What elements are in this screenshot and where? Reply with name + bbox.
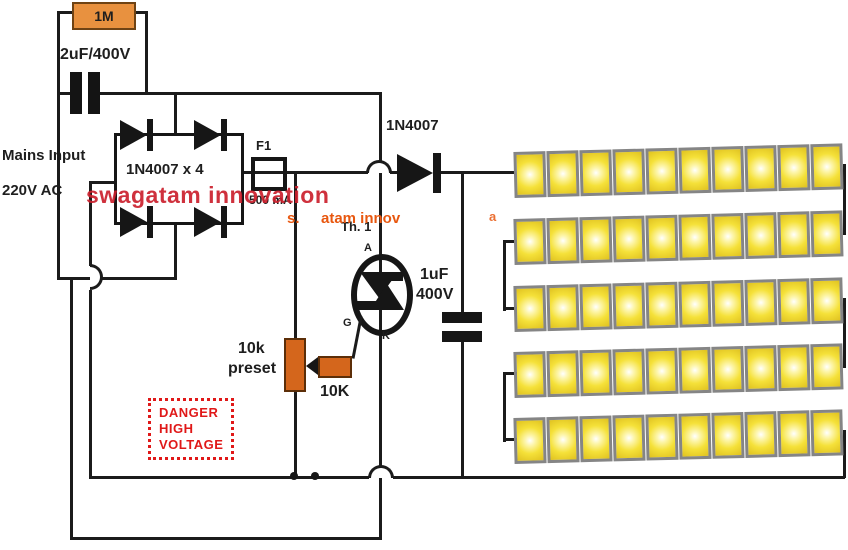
led — [513, 218, 546, 265]
wire — [89, 290, 92, 479]
bridge-label: 1N4007 x 4 — [126, 162, 204, 178]
led — [810, 277, 843, 324]
led — [612, 415, 645, 462]
junction-dot — [290, 472, 298, 480]
wire — [294, 390, 297, 478]
resistor-1m: 1M — [72, 2, 136, 30]
capacitor-1uf-plate — [442, 312, 482, 323]
led — [744, 411, 777, 458]
led — [546, 350, 579, 397]
wire — [70, 537, 382, 540]
thyristor-bar-icon — [357, 301, 383, 310]
wire — [503, 373, 506, 442]
led — [513, 417, 546, 464]
preset-potentiometer — [284, 338, 306, 392]
gate-resistor — [318, 356, 352, 378]
wire — [393, 476, 845, 479]
wire-jump — [368, 465, 394, 478]
led — [711, 280, 744, 327]
led — [744, 212, 777, 259]
thyristor-bar-icon — [377, 272, 403, 281]
led — [711, 412, 744, 459]
capacitor-2uf-plate — [88, 72, 100, 114]
wire — [461, 342, 464, 478]
led — [744, 345, 777, 392]
led — [678, 214, 711, 261]
led — [513, 351, 546, 398]
wire — [174, 93, 177, 135]
watermark-fragment: a — [489, 209, 496, 224]
led-strip-row4 — [513, 343, 843, 398]
junction-dot — [311, 472, 319, 480]
filter-cap-value-label: 1uF — [420, 267, 448, 284]
led — [777, 278, 810, 325]
wire — [503, 240, 506, 311]
cathode-label: K — [382, 331, 390, 343]
led — [711, 213, 744, 260]
led — [777, 144, 810, 191]
danger-line3: VOLTAGE — [159, 437, 223, 453]
mains-input-label: Mains Input — [2, 148, 85, 164]
danger-warning-box: DANGER HIGH VOLTAGE — [148, 398, 234, 460]
wire — [57, 92, 71, 95]
led — [810, 210, 843, 257]
led — [744, 279, 777, 326]
capacitor-2uf-label: 2uF/400V — [60, 47, 130, 64]
led — [579, 283, 612, 330]
wire — [89, 476, 369, 479]
wire-jump — [366, 160, 392, 173]
led — [612, 283, 645, 330]
led — [645, 414, 678, 461]
led — [711, 346, 744, 393]
wire — [174, 223, 177, 279]
wire — [461, 172, 464, 314]
led-strip-row1 — [513, 143, 843, 198]
led — [744, 145, 777, 192]
led-strip-row5 — [513, 409, 843, 464]
capacitor-1uf-plate — [442, 331, 482, 342]
series-diode-label: 1N4007 — [386, 118, 439, 134]
led — [513, 285, 546, 332]
resistor-1m-label: 1M — [94, 8, 113, 24]
watermark-main: swagatam innovation — [86, 182, 329, 209]
wire — [57, 277, 177, 280]
led — [678, 281, 711, 328]
anode-label: A — [364, 243, 372, 255]
bridge-diode-icon — [120, 206, 153, 238]
led — [546, 416, 579, 463]
preset-word-label: preset — [228, 361, 276, 378]
led-strip-row3 — [513, 277, 843, 332]
wire — [843, 298, 846, 368]
led — [645, 348, 678, 395]
wire — [145, 11, 148, 95]
bridge-diode-icon — [120, 119, 153, 151]
led — [612, 216, 645, 263]
led — [579, 149, 612, 196]
led — [579, 415, 612, 462]
led — [777, 344, 810, 391]
led — [579, 216, 612, 263]
watermark-fragment: s. — [287, 210, 300, 227]
led — [810, 409, 843, 456]
wire-jump — [90, 264, 103, 290]
led — [678, 413, 711, 460]
series-diode-icon — [397, 153, 441, 193]
wire — [99, 92, 382, 95]
led — [810, 343, 843, 390]
watermark-fragment: atam innov — [321, 210, 400, 227]
wire — [843, 164, 846, 235]
gate-resistor-label: 10K — [320, 384, 349, 401]
gate-label: G — [343, 318, 352, 330]
preset-value-label: 10k — [238, 341, 265, 358]
led — [678, 347, 711, 394]
led — [777, 211, 810, 258]
bridge-diode-icon — [194, 119, 227, 151]
led — [546, 217, 579, 264]
danger-line1: DANGER — [159, 405, 223, 421]
led — [678, 147, 711, 194]
filter-cap-voltage-label: 400V — [416, 287, 453, 304]
led — [546, 150, 579, 197]
led — [645, 215, 678, 262]
capacitor-2uf-plate — [70, 72, 82, 114]
mains-voltage-label: 220V AC — [2, 183, 62, 199]
bridge-diode-icon — [194, 206, 227, 238]
gate-wire — [352, 316, 363, 359]
led — [810, 143, 843, 190]
led-strip-row2 — [513, 210, 843, 265]
led — [546, 284, 579, 331]
wire — [70, 277, 73, 540]
led — [612, 349, 645, 396]
led — [645, 282, 678, 329]
led — [777, 410, 810, 457]
led — [579, 349, 612, 396]
danger-line2: HIGH — [159, 421, 223, 437]
circuit-schematic: 1M 2uF/400V 1N4007 x 4 Mains Input 220V … — [0, 0, 848, 550]
led — [645, 148, 678, 195]
wiper-arrow-icon — [306, 357, 318, 375]
fuse-name-label: F1 — [256, 139, 271, 153]
led — [612, 149, 645, 196]
led — [513, 151, 546, 198]
led — [711, 146, 744, 193]
wire — [441, 171, 516, 174]
